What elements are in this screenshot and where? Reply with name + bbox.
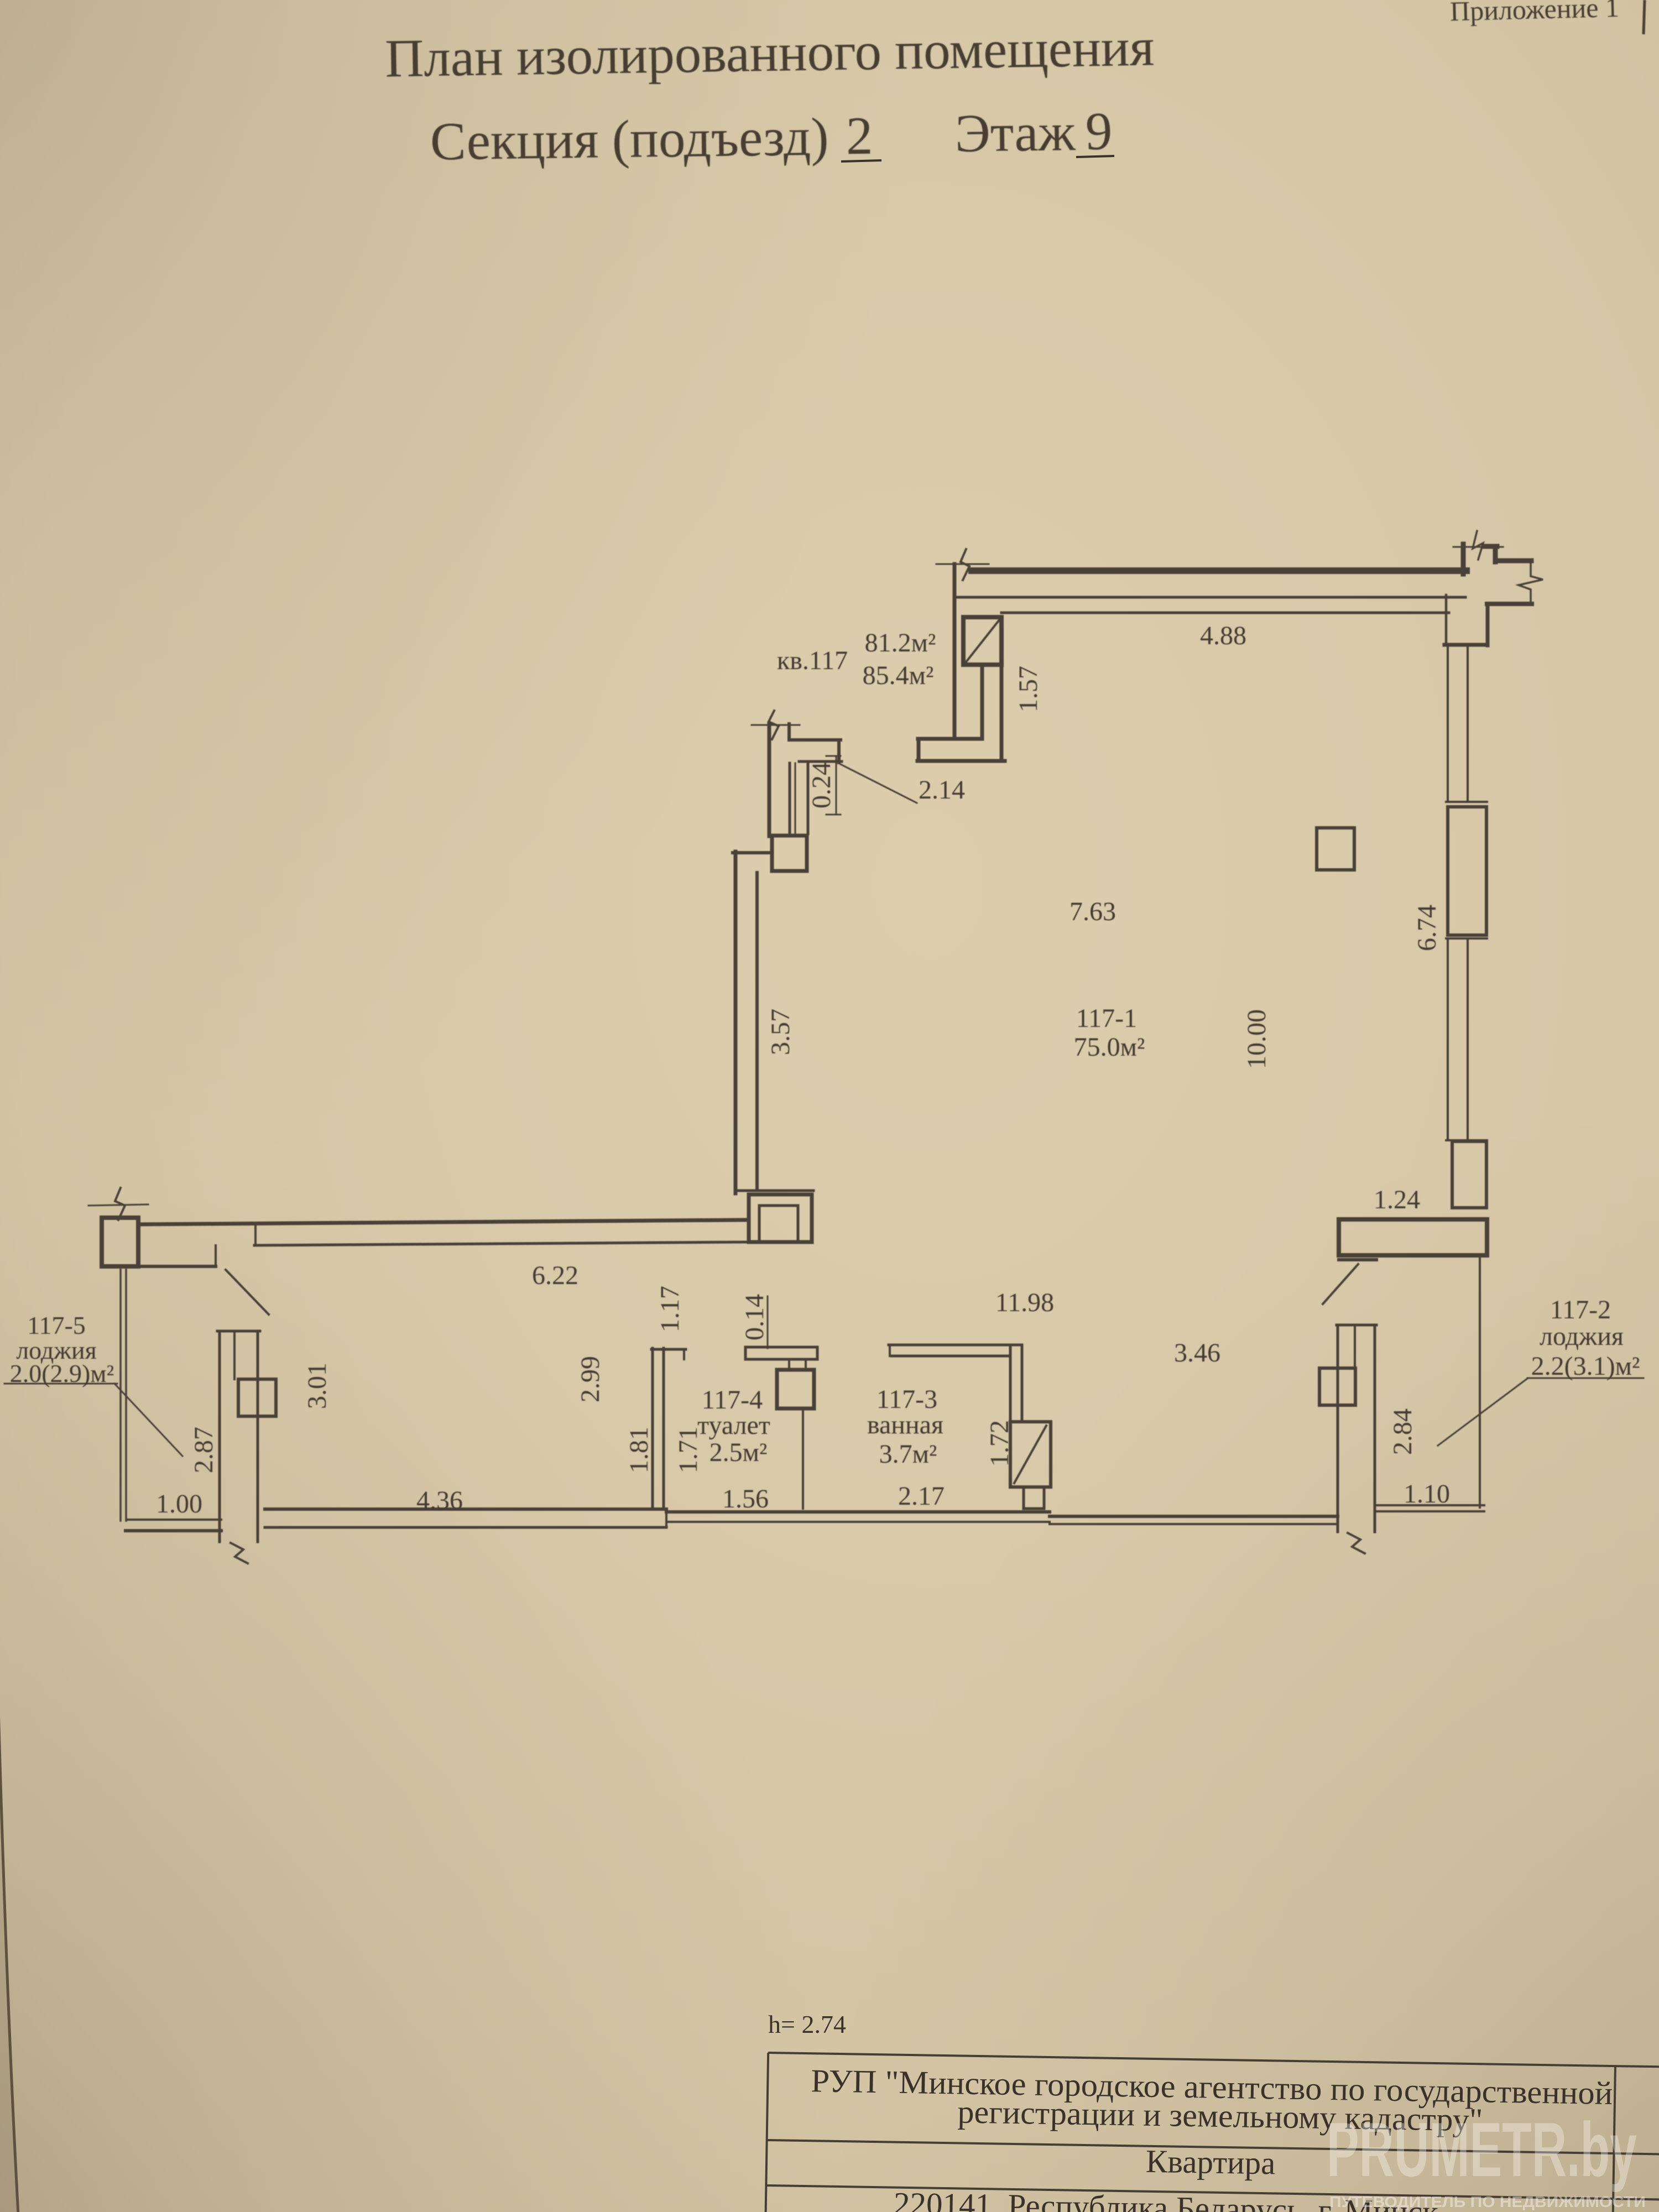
svg-text:1.10: 1.10 (1404, 1479, 1450, 1509)
svg-text:2.14: 2.14 (919, 775, 965, 805)
svg-text:10.00: 10.00 (1242, 1009, 1271, 1069)
svg-text:2.0(2.9)м²: 2.0(2.9)м² (10, 1359, 114, 1387)
svg-text:лоджия: лоджия (1540, 1322, 1624, 1351)
svg-text:0.24: 0.24 (807, 762, 836, 808)
svg-text:1.56: 1.56 (722, 1484, 769, 1514)
svg-text:6.74: 6.74 (1412, 905, 1442, 951)
svg-text:1.71: 1.71 (674, 1427, 703, 1473)
svg-text:2.2(3.1)м²: 2.2(3.1)м² (1531, 1352, 1640, 1381)
svg-text:Приложение 1: Приложение 1 (1449, 0, 1619, 27)
svg-text:7.63: 7.63 (1070, 897, 1116, 926)
svg-text:6.22: 6.22 (532, 1261, 578, 1290)
svg-text:PRUMETR.by: PRUMETR.by (1327, 2107, 1637, 2193)
svg-text:75.0м²: 75.0м² (1074, 1032, 1145, 1062)
svg-text:117-1: 117-1 (1076, 1004, 1137, 1033)
svg-text:1.72: 1.72 (985, 1420, 1014, 1467)
svg-text:3.7м²: 3.7м² (879, 1439, 937, 1469)
svg-text:9: 9 (1085, 101, 1113, 161)
svg-text:ПУТЕВОДИТЕЛЬ ПО НЕДВИЖИМОСТИ: ПУТЕВОДИТЕЛЬ ПО НЕДВИЖИМОСТИ (1329, 2193, 1646, 2210)
svg-text:ванная: ванная (867, 1410, 943, 1439)
svg-text:2.99: 2.99 (576, 1356, 605, 1402)
svg-text:4.36: 4.36 (416, 1486, 463, 1515)
svg-text:11.98: 11.98 (995, 1288, 1054, 1317)
svg-text:85.4м²: 85.4м² (863, 661, 934, 690)
svg-text:h= 2.74: h= 2.74 (768, 2010, 846, 2038)
svg-text:кв.117: кв.117 (777, 646, 848, 675)
svg-text:2.5м²: 2.5м² (709, 1438, 768, 1467)
svg-text:117-2: 117-2 (1550, 1295, 1611, 1324)
svg-text:3.01: 3.01 (302, 1363, 332, 1409)
svg-text:117-5: 117-5 (27, 1311, 86, 1339)
svg-text:1.57: 1.57 (1014, 666, 1043, 712)
svg-text:2.17: 2.17 (898, 1481, 945, 1511)
svg-text:1.00: 1.00 (156, 1489, 202, 1519)
svg-text:4.88: 4.88 (1200, 621, 1246, 650)
svg-text:3.57: 3.57 (766, 1009, 795, 1055)
svg-text:План изолированного помещения: План изолированного помещения (385, 18, 1155, 88)
svg-text:1.17: 1.17 (655, 1286, 685, 1332)
svg-text:2.87: 2.87 (189, 1427, 218, 1473)
svg-text:Секция (подъезд): Секция (подъезд) (430, 107, 829, 171)
svg-text:1.24: 1.24 (1374, 1185, 1420, 1214)
svg-text:0.14: 0.14 (740, 1294, 769, 1340)
svg-text:2.84: 2.84 (1388, 1408, 1417, 1455)
svg-text:Этаж: Этаж (954, 102, 1076, 163)
svg-text:81.2м²: 81.2м² (865, 628, 936, 658)
svg-text:3.46: 3.46 (1174, 1338, 1220, 1368)
svg-text:1.81: 1.81 (624, 1427, 654, 1473)
svg-text:туалет: туалет (697, 1411, 770, 1440)
svg-text:2: 2 (846, 106, 873, 166)
